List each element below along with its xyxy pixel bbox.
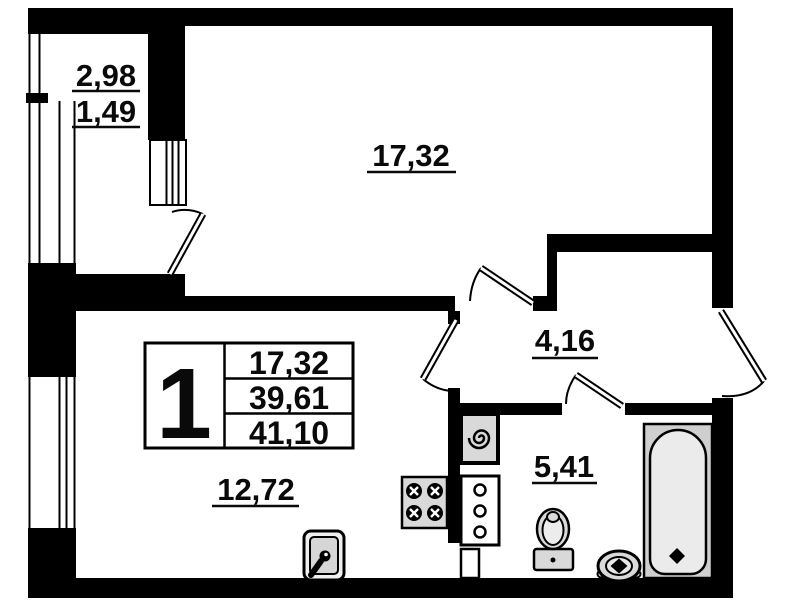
living-room-door: [470, 268, 533, 303]
wall-segment: [533, 296, 557, 311]
washbasin-icon: [598, 551, 641, 581]
balcony-door: [170, 210, 203, 274]
floor-plan-page: 1 17,32 39,61 41,10 2,98 1,49 17,32 4,16…: [0, 0, 799, 600]
wall-segment: [28, 528, 76, 578]
wall-segment: [28, 8, 148, 34]
wall-segment: [185, 296, 455, 311]
hallway-area: 4,16: [535, 323, 595, 358]
kitchen-sink-icon: [304, 531, 344, 580]
area-without-balcony-value: 39,61: [249, 380, 329, 416]
vent-duct-icon: [461, 549, 479, 578]
toilet-icon: [534, 509, 573, 570]
wall-segment: [28, 263, 76, 377]
fixtures: [304, 414, 712, 581]
wall-segment: [148, 8, 733, 26]
washing-machine-icon: [461, 414, 498, 463]
bathroom-door: [566, 375, 622, 406]
total-area-value: 41,10: [249, 415, 329, 451]
wall-segment: [712, 398, 733, 598]
balcony-area-reduced: 1,49: [76, 94, 136, 129]
rooms-count: 1: [156, 348, 212, 460]
wall-segment: [547, 234, 712, 252]
stove-icon: [402, 477, 447, 528]
bathtub-icon: [644, 424, 712, 578]
bathroom-area: 5,41: [534, 449, 594, 484]
unit-info-table: 1 17,32 39,61 41,10: [145, 343, 353, 460]
floor-plan: 1 17,32 39,61 41,10 2,98 1,49 17,32 4,16…: [0, 0, 799, 600]
balcony-door-window: [150, 140, 186, 205]
wall-segment: [625, 403, 712, 415]
entrance-door: [721, 311, 764, 396]
wall-segment: [448, 388, 460, 543]
kitchen-door: [423, 320, 456, 391]
cabinet-icon: [461, 476, 499, 545]
living-room-area: 17,32: [372, 138, 450, 173]
balcony-area-full: 2,98: [76, 58, 136, 93]
kitchen-area: 12,72: [217, 472, 295, 507]
wall-segment: [148, 8, 185, 140]
living-area-value: 17,32: [249, 345, 329, 381]
wall-segment: [712, 8, 733, 308]
